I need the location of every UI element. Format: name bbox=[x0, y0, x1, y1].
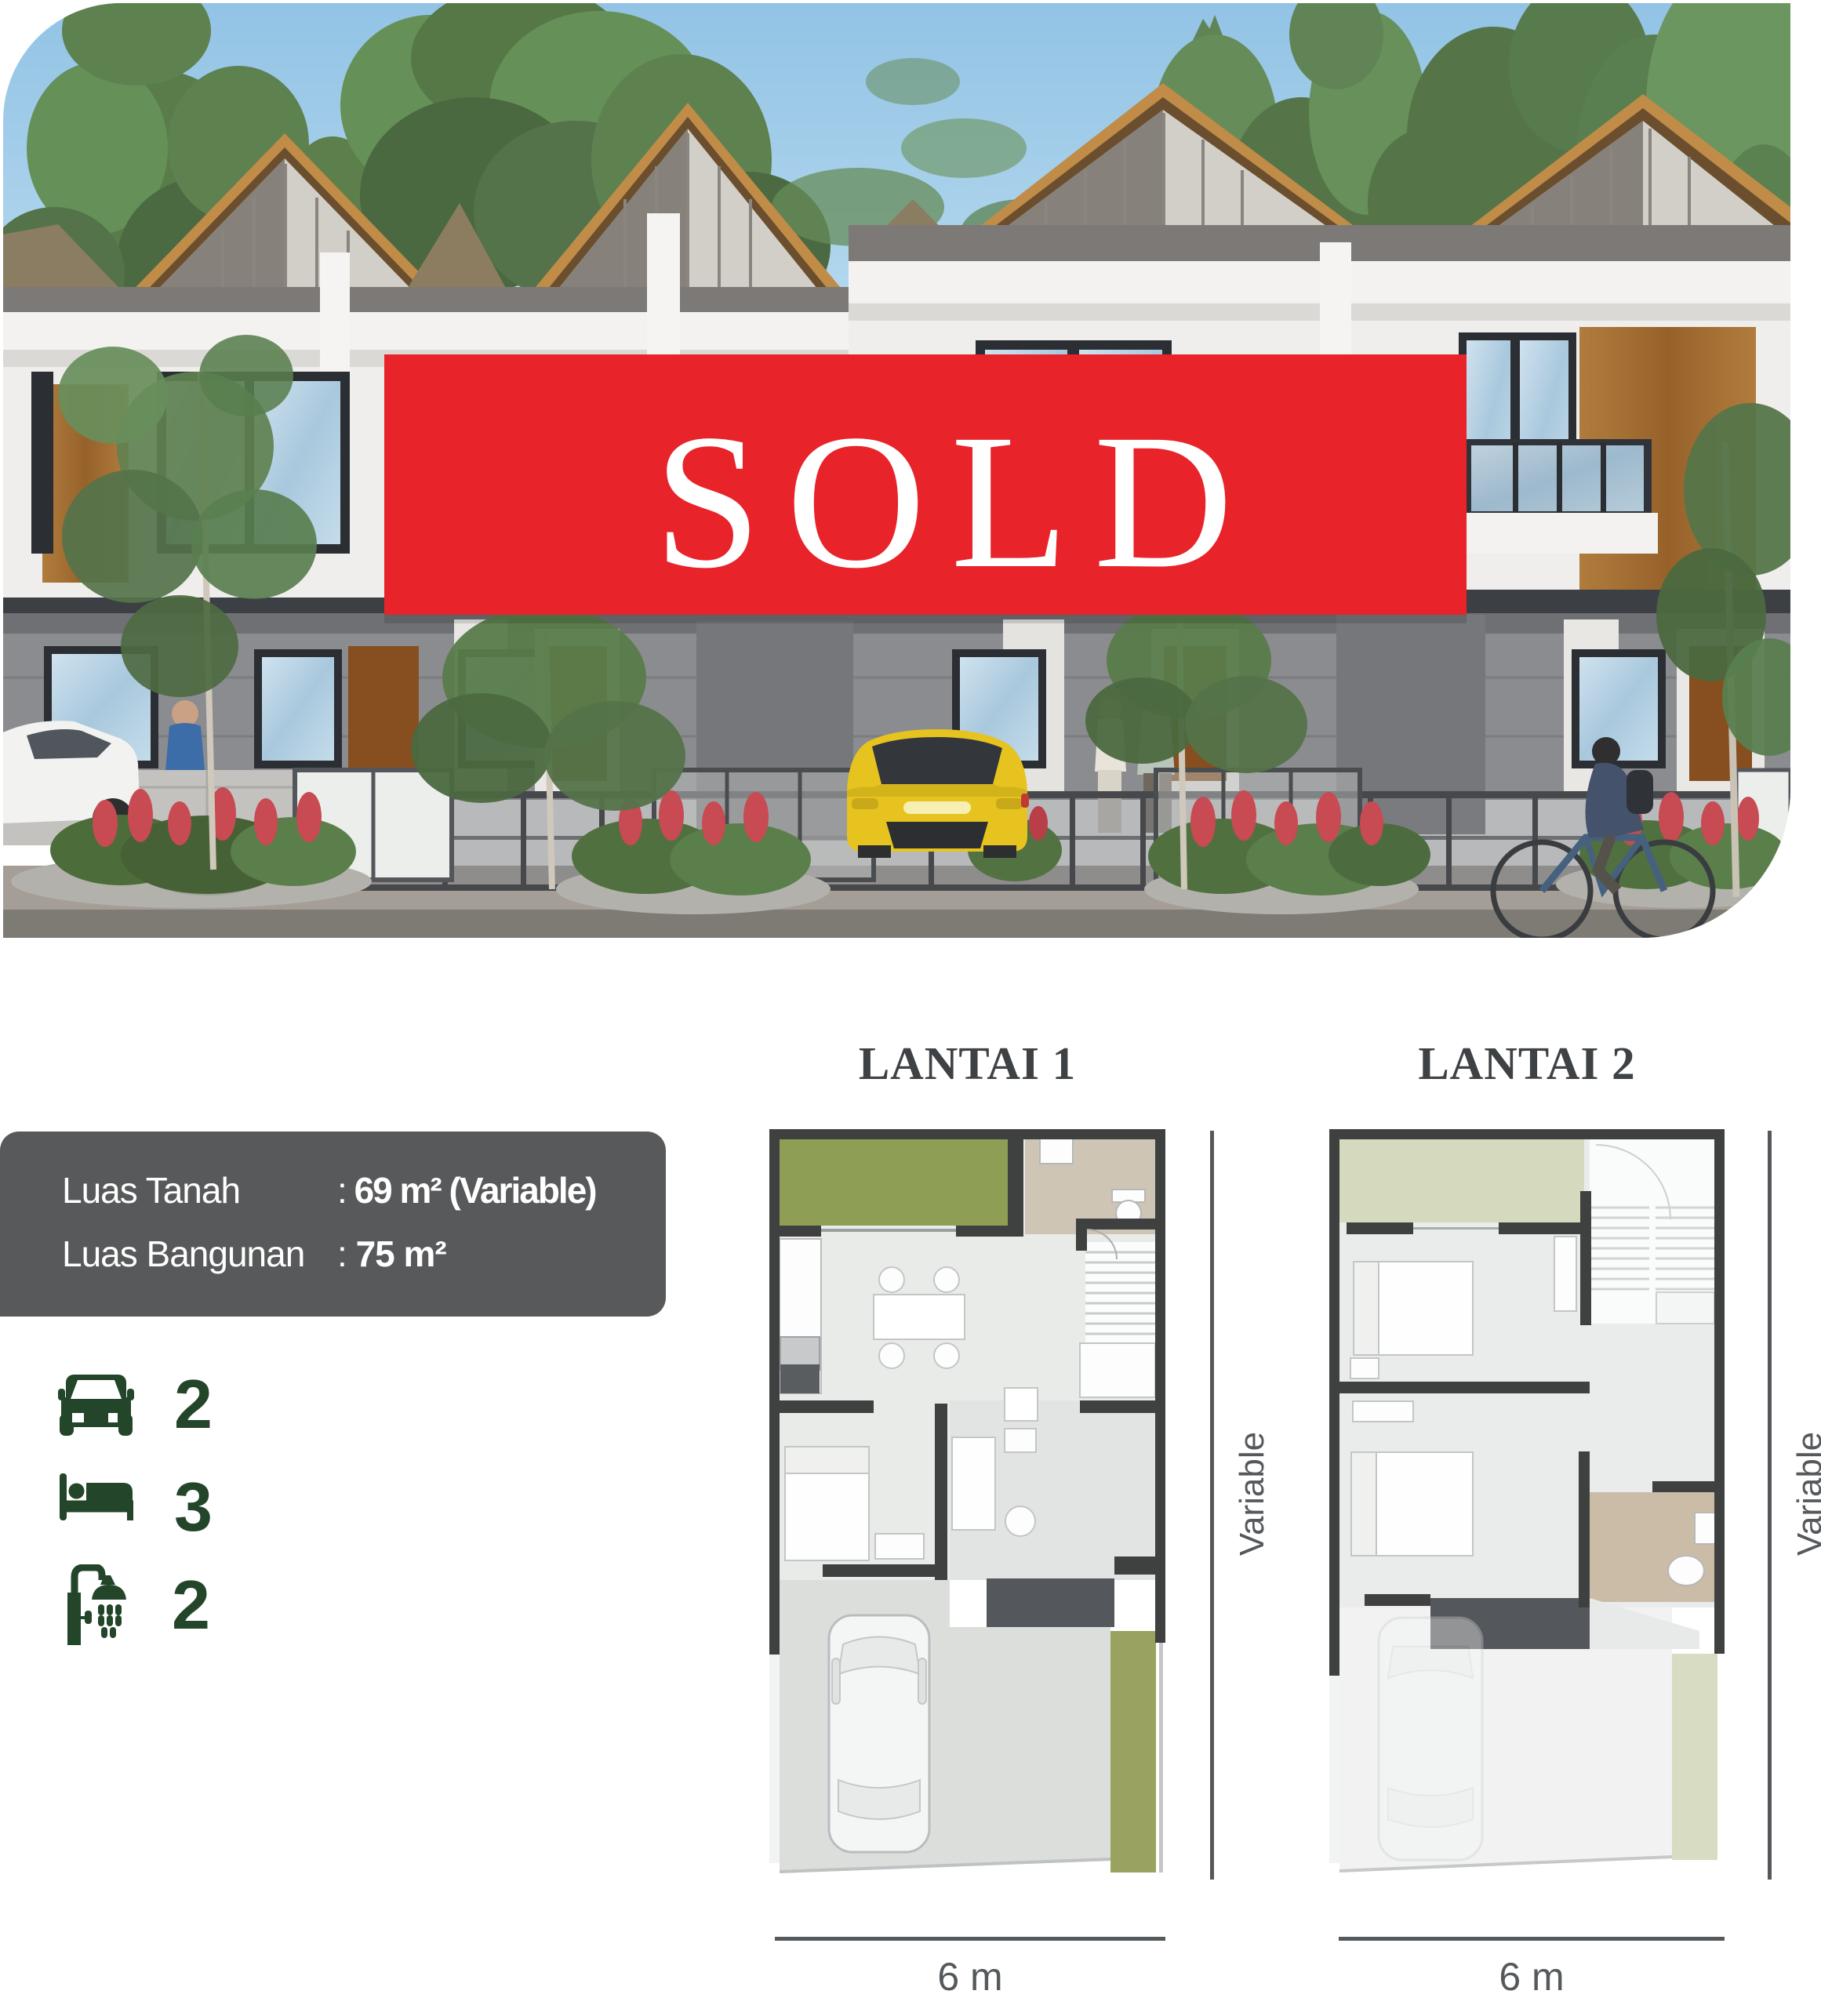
svg-text:SOLD: SOLD bbox=[654, 395, 1258, 608]
